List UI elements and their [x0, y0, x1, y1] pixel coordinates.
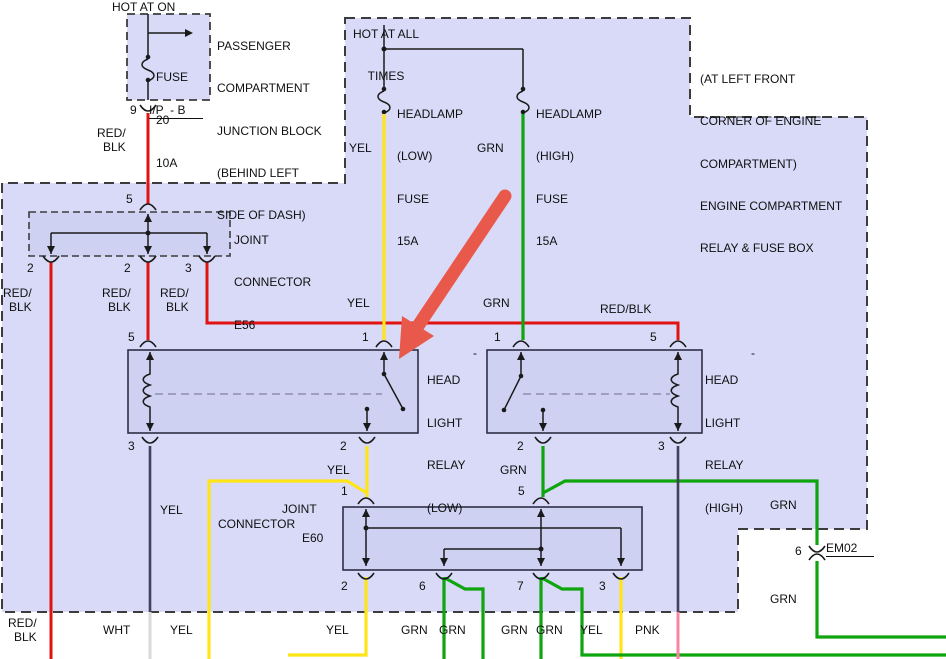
- connector-ip-b-label: I/P - B: [149, 104, 203, 119]
- wire-color-label: BLK: [166, 301, 189, 313]
- pin-number: 3: [128, 440, 135, 452]
- pin-number: 2: [340, 440, 347, 452]
- wire-color-label: YEL: [347, 297, 370, 309]
- wire-color-label: BLK: [108, 301, 131, 313]
- connector-pin-arc: [809, 546, 825, 552]
- wire-color-label: RED/: [102, 287, 131, 299]
- connector-pin-arc: [809, 554, 825, 560]
- wire-color-label: RED/: [97, 127, 126, 139]
- wire-color-label: GRN: [439, 624, 466, 636]
- pin-number: 5: [128, 331, 135, 343]
- wire-color-label: BLK: [103, 141, 126, 153]
- wire-color-label: RED/: [3, 287, 32, 299]
- e60-label-joint: JOINT: [282, 503, 317, 516]
- engine-box-description: (AT LEFT FRONT CORNER OF ENGINE COMPARTM…: [700, 44, 842, 283]
- pin-number: 7: [517, 580, 524, 592]
- wire-color-label: GRN: [536, 624, 563, 636]
- pin-number: 1: [341, 485, 348, 497]
- pin-number: 5: [650, 331, 657, 343]
- wire-color-label: RED/: [8, 617, 37, 629]
- wire-color-label: PNK: [635, 624, 660, 636]
- fuse-high-label: HEADLAMP (HIGH) FUSE 15A: [536, 79, 602, 276]
- wire-color-label: GRN: [501, 624, 528, 636]
- wire-color-label: YEL: [349, 142, 372, 154]
- wire-color-label: GRN: [770, 593, 797, 605]
- wire-color-label: BLK: [14, 631, 37, 643]
- wire-color-label: YEL: [170, 624, 193, 636]
- e60-label-connector: CONNECTOR: [218, 518, 295, 531]
- wire-color-label: RED/BLK: [600, 303, 651, 315]
- relay-high-label: HEAD LIGHT RELAY (HIGH): [705, 345, 743, 543]
- wire-color-label: YEL: [327, 464, 350, 476]
- wire-color-label: WHT: [103, 624, 130, 636]
- wire-color-label: RED/: [160, 287, 189, 299]
- pin-number: 1: [362, 331, 369, 343]
- wire-color-label: GRN: [770, 499, 797, 511]
- pin-number: 2: [341, 580, 348, 592]
- joint-connector-e56-box: [29, 204, 230, 262]
- label-hot-at-on: HOT AT ON: [112, 1, 175, 14]
- joint-connector-e60-box: [343, 498, 642, 579]
- wire-color-label: GRN: [483, 297, 510, 309]
- relay-low-label: HEAD LIGHT RELAY (LOW): [427, 345, 465, 543]
- pin-number: 9: [130, 104, 137, 116]
- pin-number: 2: [124, 262, 131, 274]
- jb-fuse-label: FUSE 20 10A: [156, 42, 188, 199]
- fuse-low-label: HEADLAMP (LOW) FUSE 15A: [397, 79, 463, 276]
- e60-label-name: E60: [302, 532, 323, 545]
- wire-color-label: BLK: [9, 301, 32, 313]
- pin-number: 5: [126, 193, 133, 205]
- pin-number: 3: [658, 440, 665, 452]
- wire-grn-em02-down: [817, 561, 946, 637]
- pin-number: 3: [185, 262, 192, 274]
- pin-number: 2: [27, 262, 34, 274]
- relay-high-dash: -: [751, 347, 755, 360]
- wire-color-label: GRN: [500, 464, 527, 476]
- em02-label: EM02: [826, 542, 874, 557]
- headlight-relay-high-box: [487, 341, 702, 443]
- wire-color-label: GRN: [477, 142, 504, 154]
- pin-number: 5: [518, 485, 525, 497]
- wire-color-label: YEL: [326, 624, 349, 636]
- relay-low-dash: -: [473, 347, 477, 360]
- connector-em02: [809, 546, 825, 560]
- wire-color-label: YEL: [160, 504, 183, 516]
- e56-label: JOINT CONNECTOR E56: [234, 205, 311, 360]
- wire-color-label: YEL: [580, 624, 603, 636]
- pin-number: 2: [517, 440, 524, 452]
- pin-number: 3: [599, 580, 606, 592]
- wiring-diagram: HOT AT ON HOT AT ALL TIMES PASSENGER COM…: [0, 0, 946, 659]
- pin-number: 1: [494, 331, 501, 343]
- pin-number: 6: [795, 545, 802, 557]
- wire-color-label: GRN: [401, 624, 428, 636]
- pin-number: 6: [419, 580, 426, 592]
